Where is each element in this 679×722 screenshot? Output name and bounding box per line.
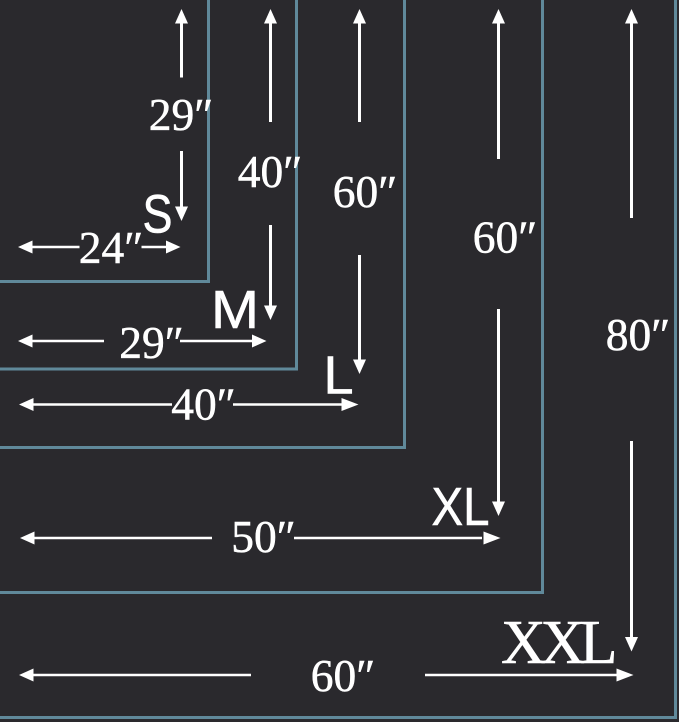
svg-text:XXL: XXL xyxy=(501,609,615,677)
svg-text:29″: 29″ xyxy=(119,317,183,368)
svg-text:24″: 24″ xyxy=(79,222,143,273)
svg-text:60″: 60″ xyxy=(333,166,397,217)
svg-text:M: M xyxy=(211,280,259,340)
svg-text:80″: 80″ xyxy=(606,309,670,360)
svg-text:L: L xyxy=(323,346,353,406)
svg-text:40″: 40″ xyxy=(171,379,235,430)
svg-text:60″: 60″ xyxy=(311,650,375,701)
svg-text:XL: XL xyxy=(432,477,490,537)
svg-text:40″: 40″ xyxy=(238,146,302,197)
svg-text:60″: 60″ xyxy=(473,212,537,263)
svg-text:S: S xyxy=(143,185,173,245)
svg-text:50″: 50″ xyxy=(231,511,295,562)
svg-text:29″: 29″ xyxy=(149,89,213,140)
